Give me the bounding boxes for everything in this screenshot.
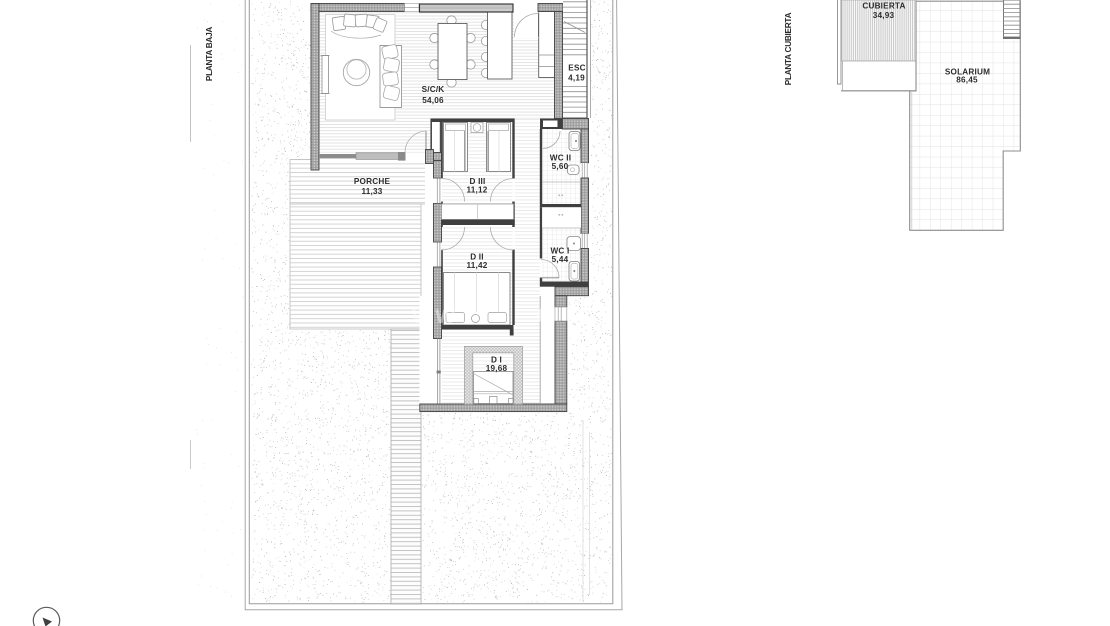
- svg-text:PLANTA BAJA: PLANTA BAJA: [205, 27, 214, 81]
- svg-text:5,44: 5,44: [552, 255, 569, 264]
- svg-text:5,60: 5,60: [552, 162, 569, 171]
- svg-text:S/C/K: S/C/K: [422, 85, 445, 94]
- svg-text:34,93: 34,93: [873, 11, 895, 20]
- svg-text:86,45: 86,45: [956, 76, 978, 85]
- svg-text:54,06: 54,06: [422, 96, 444, 105]
- svg-text:11,12: 11,12: [466, 186, 487, 195]
- svg-text:o: o: [536, 298, 553, 328]
- svg-text:ww: ww: [411, 299, 458, 329]
- svg-text:ESC: ESC: [568, 64, 585, 73]
- svg-text:4,19: 4,19: [568, 74, 585, 83]
- svg-text:PLANTA CUBIERTA: PLANTA CUBIERTA: [784, 12, 793, 85]
- svg-text:PORCHE: PORCHE: [354, 177, 391, 186]
- svg-text:19,68: 19,68: [486, 364, 508, 373]
- svg-text:CUBIERTA: CUBIERTA: [862, 2, 905, 11]
- svg-text:11,33: 11,33: [361, 187, 382, 196]
- svg-text:11,42: 11,42: [466, 261, 487, 270]
